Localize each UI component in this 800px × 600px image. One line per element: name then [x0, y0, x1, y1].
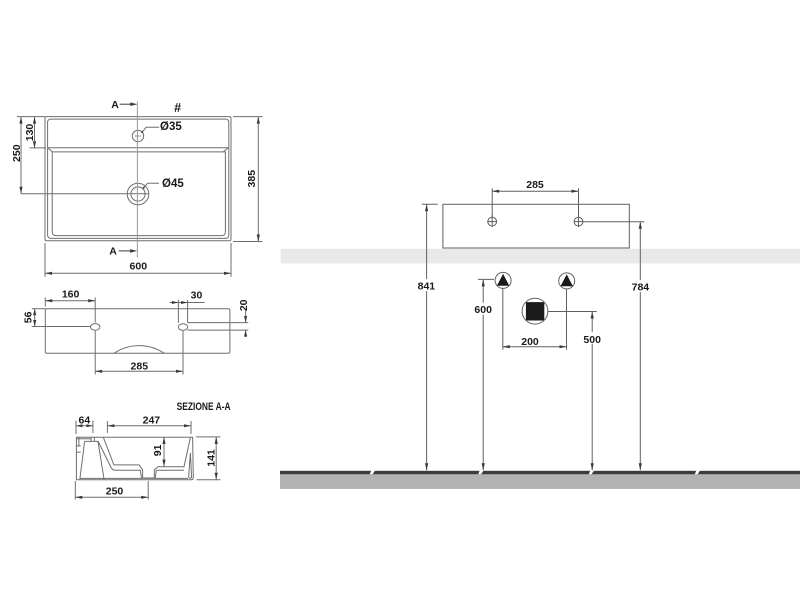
svg-text:20: 20 [238, 299, 250, 311]
svg-text:64: 64 [79, 414, 91, 426]
svg-text:784: 784 [632, 281, 650, 293]
svg-text:30: 30 [191, 290, 203, 302]
svg-text:500: 500 [583, 334, 601, 346]
svg-text:841: 841 [418, 280, 436, 292]
svg-text:250: 250 [11, 144, 23, 162]
svg-text:160: 160 [62, 289, 80, 301]
svg-text:285: 285 [526, 179, 544, 191]
svg-text:91: 91 [152, 444, 164, 456]
svg-text:141: 141 [205, 449, 217, 467]
svg-text:56: 56 [23, 311, 35, 323]
svg-text:#: # [174, 101, 181, 115]
svg-text:SEZIONE A-A: SEZIONE A-A [177, 401, 231, 413]
svg-text:250: 250 [106, 485, 124, 497]
svg-text:600: 600 [474, 304, 492, 316]
svg-text:130: 130 [24, 124, 36, 142]
svg-text:247: 247 [143, 414, 161, 426]
svg-text:A: A [109, 246, 117, 258]
svg-text:285: 285 [131, 361, 149, 373]
svg-text:Ø35: Ø35 [160, 121, 182, 133]
svg-text:Ø45: Ø45 [162, 178, 184, 190]
svg-text:600: 600 [130, 261, 148, 273]
svg-text:385: 385 [246, 170, 258, 188]
svg-text:A: A [111, 99, 119, 111]
svg-text:200: 200 [521, 336, 539, 348]
